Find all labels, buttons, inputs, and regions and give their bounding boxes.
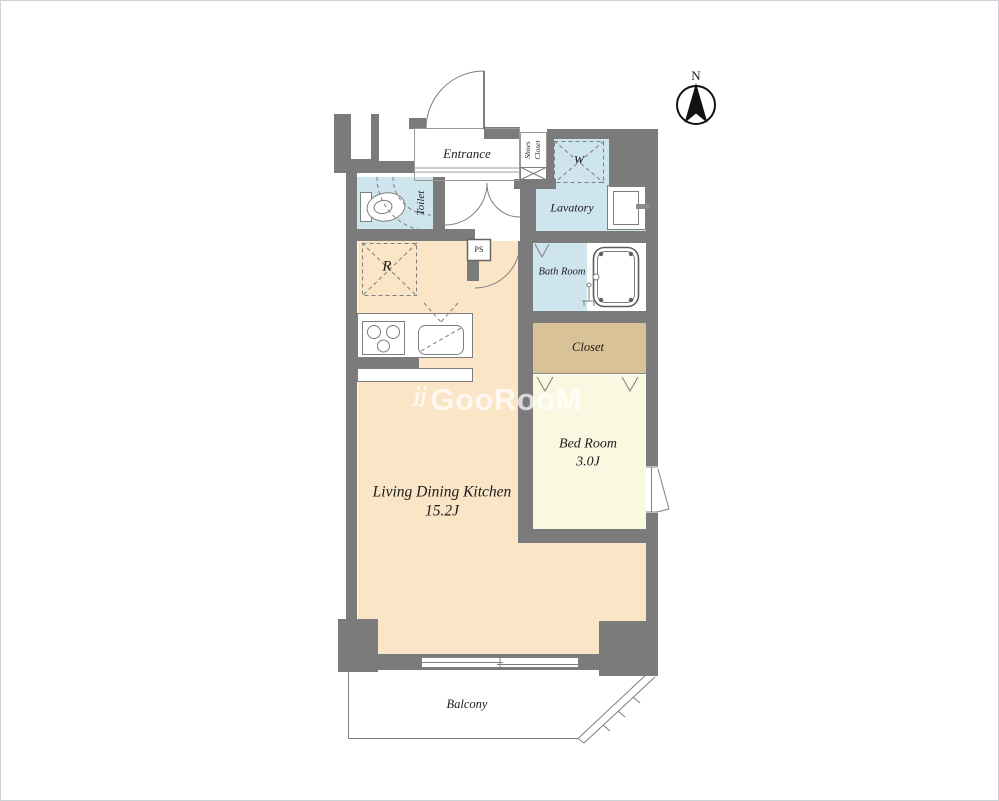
toilet-fixture	[361, 190, 408, 224]
bath-door-mark	[535, 244, 549, 257]
front-door-arc	[426, 71, 484, 129]
toilet-label: Toilet	[415, 191, 429, 216]
north-label: N	[691, 68, 700, 84]
pipe-space-label: PS	[475, 245, 484, 255]
bath-room-label: Bath Room	[539, 265, 586, 278]
kitchen-counter	[358, 303, 473, 382]
ldk-label: Living Dining Kitchen 15.2J	[373, 483, 512, 522]
closet-label: Closet	[572, 340, 604, 356]
shoes-closet-label: Shoes Closet	[523, 140, 543, 159]
bathtub	[593, 248, 639, 307]
watermark: jj GooRooM	[414, 382, 582, 418]
ldk-window	[421, 657, 579, 668]
hall-door-arc	[445, 183, 487, 225]
lavatory-door-arc	[487, 184, 520, 217]
entrance-label: Entrance	[443, 146, 491, 162]
watermark-logo-icon: jj	[414, 382, 427, 408]
watermark-text: GooRooM	[430, 382, 582, 418]
refrigerator-label: R	[382, 258, 391, 277]
washer-label: W	[574, 153, 584, 168]
balcony-label: Balcony	[447, 697, 488, 713]
lavatory-label: Lavatory	[550, 201, 593, 216]
bedroom-label: Bed Room 3.0J	[559, 436, 617, 471]
compass-icon	[677, 83, 715, 124]
balcony-outline	[349, 672, 656, 743]
floor-plan: Entrance Shoes Closet W Toilet Lavatory …	[0, 0, 999, 801]
bedroom-window	[646, 467, 669, 512]
washbasin	[608, 186, 651, 230]
